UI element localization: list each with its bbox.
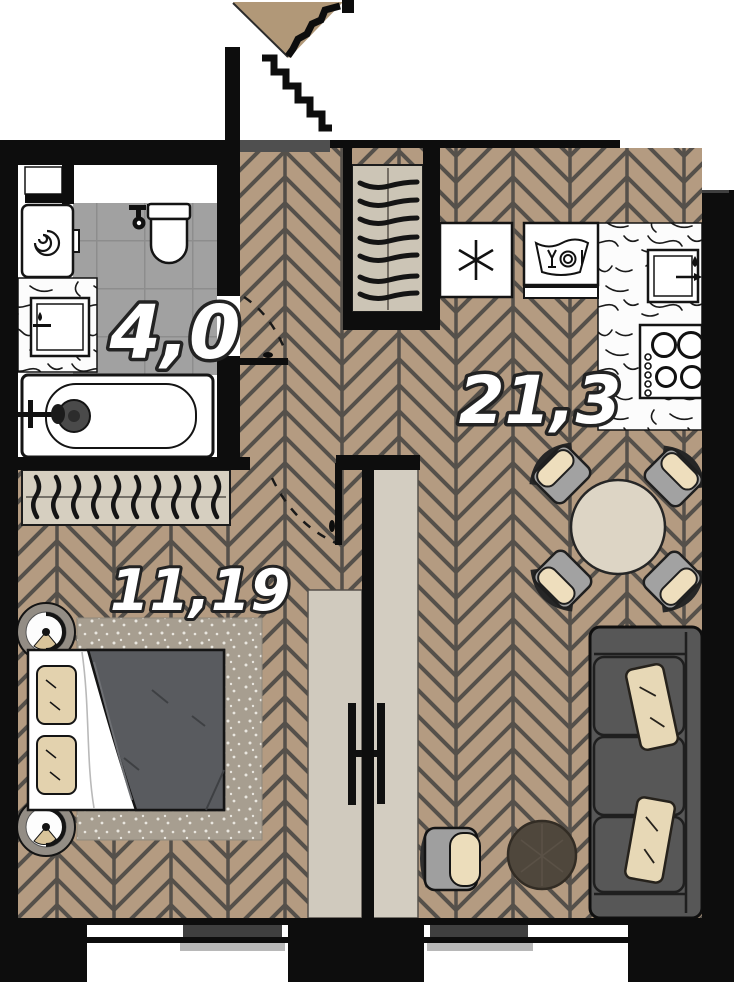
- entrance-step-line: [262, 58, 332, 128]
- tv-screen-icon: [348, 703, 356, 805]
- living-tv-panel: [373, 468, 418, 918]
- window-frame: [424, 937, 628, 943]
- floor-plan-canvas: 4,0 21,3 11,19: [0, 0, 734, 982]
- bathroom-niche: [25, 167, 62, 194]
- closet-bottom-wall: [343, 312, 440, 330]
- tv-screen-icon: [377, 703, 385, 804]
- right-wall: [702, 193, 734, 938]
- bathroom-bottom-wall: [0, 457, 250, 470]
- bathtub: [18, 375, 213, 457]
- bottom-wall-corner-right: [628, 938, 734, 982]
- bottom-wall-corner-left: [0, 938, 87, 982]
- entrance-threshold: [240, 140, 330, 152]
- partition-wall: [362, 455, 374, 918]
- dining-table: [571, 480, 665, 574]
- entrance-jamb: [225, 47, 240, 142]
- kitchen-living-area-label: 21,3: [459, 362, 622, 439]
- bed-pillow: [37, 736, 76, 794]
- armchair: [425, 828, 481, 890]
- window-left: [87, 925, 288, 982]
- door-leaf: [335, 463, 342, 545]
- bathroom-vanity: [18, 278, 97, 372]
- partition-cap-wall: [336, 455, 420, 470]
- bottom-wall-center: [288, 938, 424, 982]
- niche-ledge: [25, 194, 63, 203]
- washing-machine: [22, 205, 79, 277]
- bed-pillow: [37, 666, 76, 724]
- bedroom-wardrobe: [22, 470, 230, 525]
- closet-right-jamb: [423, 140, 440, 330]
- bathroom-right-wall-upper: [217, 140, 240, 296]
- left-wall: [0, 140, 18, 938]
- bed: [28, 650, 224, 810]
- round-pouf: [508, 821, 576, 889]
- toilet-tank: [148, 204, 190, 219]
- fridge: [440, 223, 512, 297]
- toilet-bowl: [151, 219, 187, 263]
- bathroom-area-label: 4,0: [108, 290, 240, 376]
- bedroom-area-label: 11,19: [110, 558, 290, 624]
- sofa: [590, 627, 702, 918]
- top-wall-left: [0, 140, 240, 165]
- window-right: [424, 925, 628, 982]
- floor-plan-drawing: 4,0 21,3 11,19: [0, 0, 734, 982]
- window-sill-bars: [430, 925, 528, 937]
- dishwasher: [524, 223, 598, 298]
- stove: [640, 325, 704, 398]
- kitchen-sink: [648, 250, 702, 302]
- door-handle: [263, 352, 273, 358]
- window-sill-bars: [183, 925, 282, 937]
- window-frame: [87, 937, 288, 943]
- entry-closet: [352, 165, 423, 312]
- closet-left-jamb: [343, 140, 352, 330]
- entrance-marker: [233, 0, 354, 128]
- niche-divider-wall: [62, 165, 74, 204]
- door-handle: [329, 520, 335, 532]
